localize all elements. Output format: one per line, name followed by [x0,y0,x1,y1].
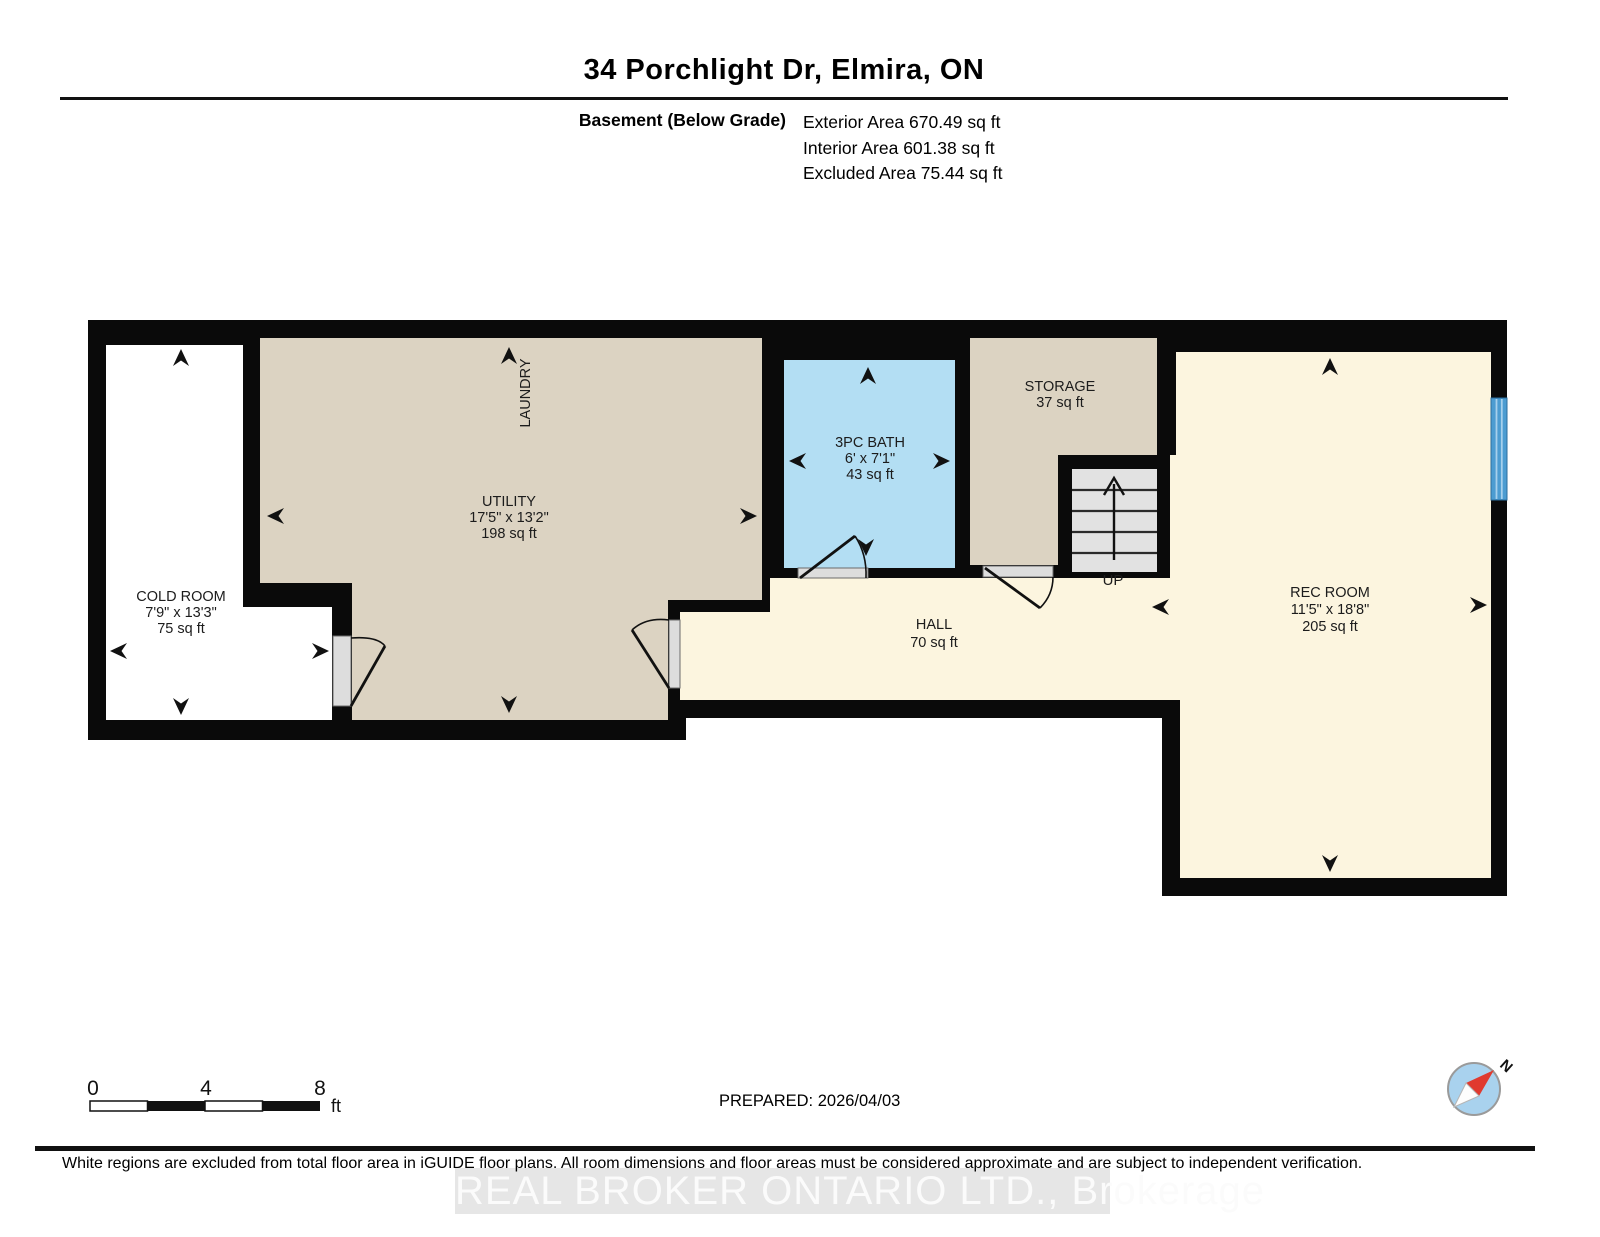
rec-room-label: REC ROOM [1290,585,1370,601]
scale-tick-8: 8 [314,1077,326,1100]
cold-room-door-jamb [333,636,351,706]
hall-area: 70 sq ft [910,635,958,651]
compass-icon: N [1448,1056,1516,1115]
floor-plan-svg: COLD ROOM 7'9" x 13'3" 75 sq ft UTILITY … [0,0,1600,1237]
hall-label: HALL [916,617,952,633]
scale-tick-4: 4 [200,1077,212,1100]
compass-north-label: N [1496,1056,1515,1076]
prepared-date: PREPARED: 2026/04/03 [719,1092,900,1111]
scale-bar: 0 4 8 ft [87,1077,341,1116]
scale-tick-0: 0 [87,1077,99,1100]
storage-area: 37 sq ft [1036,395,1084,411]
floorplan-page: 34 Porchlight Dr, Elmira, ON Basement (B… [0,0,1600,1237]
stairs-up-label: UP [1103,572,1124,589]
window [1491,398,1507,500]
staircase [1072,469,1157,572]
disclaimer-text: White regions are excluded from total fl… [62,1155,1362,1173]
footer-divider [35,1146,1535,1151]
rec-room-dims: 11'5" x 18'8" [1291,602,1369,618]
rec-room-area: 205 sq ft [1302,619,1358,635]
utility-area: 198 sq ft [481,526,537,542]
bath-label: 3PC BATH [835,435,905,451]
laundry-label: LAUNDRY [518,358,534,427]
utility-door-jamb [669,620,680,688]
bath-area: 43 sq ft [846,467,894,483]
watermark: REAL BROKER ONTARIO LTD., Brokerage [455,1168,1110,1214]
cold-room-label: COLD ROOM [136,589,225,605]
utility-dims: 17'5" x 13'2" [469,510,549,526]
cold-room-area: 75 sq ft [157,621,205,637]
storage-label: STORAGE [1025,379,1096,395]
scale-unit-label: ft [331,1096,341,1116]
bath-dims: 6' x 7'1" [845,451,895,467]
utility-label: UTILITY [482,494,536,510]
cold-room-dims: 7'9" x 13'3" [145,605,216,621]
